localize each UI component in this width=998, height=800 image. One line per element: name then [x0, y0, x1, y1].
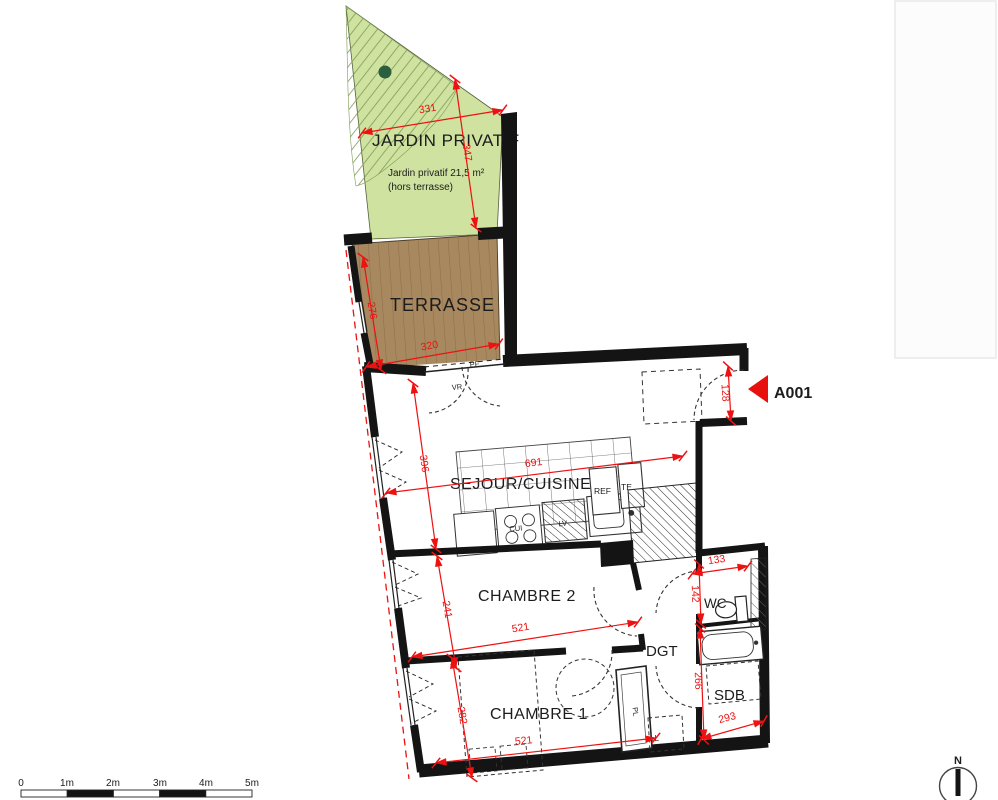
- entrance-label: A001: [774, 385, 812, 402]
- entrance-arrow-icon: [748, 375, 768, 403]
- bedroom2-label: CHAMBRE 2: [478, 588, 576, 605]
- scale-4m: 4m: [199, 778, 213, 789]
- bathroom-label: SDB: [714, 687, 745, 704]
- north-label: N: [954, 755, 962, 767]
- terrace-label: TERRASSE: [390, 295, 495, 315]
- bathtub: [697, 626, 764, 664]
- tree-icon: [379, 66, 392, 79]
- dim-entry-width: 128: [719, 384, 732, 402]
- dim-living-width: 691: [524, 456, 543, 470]
- scale-0: 0: [18, 778, 24, 789]
- dim-living-depth: 396: [417, 454, 431, 473]
- garden-area-note-1: Jardin privatif 21,5 m²: [388, 168, 485, 179]
- bedroom1-label: CHAMBRE 1: [490, 706, 588, 723]
- wardrobe-label: PL: [630, 707, 640, 717]
- scale-bar-labels: 0 1m 2m 3m 4m 5m: [18, 778, 259, 789]
- page-edge-panel: [895, 1, 996, 358]
- floor-plan-drawing: JARDIN PRIVATIF Jardin privatif 21,5 m² …: [0, 0, 998, 800]
- wc-hatched-wall: [751, 558, 766, 630]
- scale-5m: 5m: [245, 778, 259, 789]
- dishwasher-label: LV: [558, 519, 567, 529]
- dim-wc-width: 133: [707, 553, 726, 567]
- technical-shaft: [628, 483, 701, 563]
- scale-1m: 1m: [60, 778, 74, 789]
- scale-2m: 2m: [106, 778, 120, 789]
- scale-3m: 3m: [153, 778, 167, 789]
- scale-bar: 0 1m 2m 3m 4m 5m: [18, 778, 259, 797]
- fridge-label: REF: [594, 486, 611, 496]
- floor-plan-page: JARDIN PRIVATIF Jardin privatif 21,5 m² …: [0, 0, 998, 800]
- cooktop-label: CUI: [509, 523, 523, 533]
- dim-bathroom-depth: 266: [692, 672, 705, 690]
- building-edge-wall: [501, 112, 517, 364]
- dim-garden-depth: 347: [460, 143, 474, 162]
- roller-shutter-label: VR: [451, 382, 463, 392]
- hallway-label: DGT: [646, 643, 678, 660]
- dim-bedroom1-width: 521: [514, 734, 533, 748]
- north-arrow-icon: N: [940, 755, 977, 800]
- dim-wc-depth: 142: [689, 585, 702, 603]
- garden-area-note-2: (hors terrasse): [388, 182, 453, 193]
- garden-area: JARDIN PRIVATIF Jardin privatif 21,5 m² …: [346, 6, 520, 239]
- living-kitchen-label: SEJOUR/CUISINE: [450, 476, 591, 493]
- garden-label: JARDIN PRIVATIF: [372, 131, 520, 150]
- wc-label: WC: [704, 596, 727, 611]
- french-door-label: PF: [469, 359, 480, 369]
- wall-chunk: [600, 540, 634, 567]
